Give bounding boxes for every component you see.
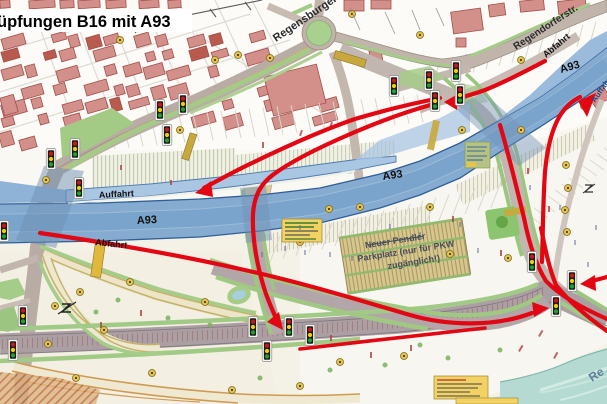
svg-text:A93: A93 [137, 214, 158, 227]
svg-text:üpfungen B16 mit A93: üpfungen B16 mit A93 [0, 13, 171, 31]
svg-text:Auffahrt: Auffahrt [99, 188, 134, 200]
